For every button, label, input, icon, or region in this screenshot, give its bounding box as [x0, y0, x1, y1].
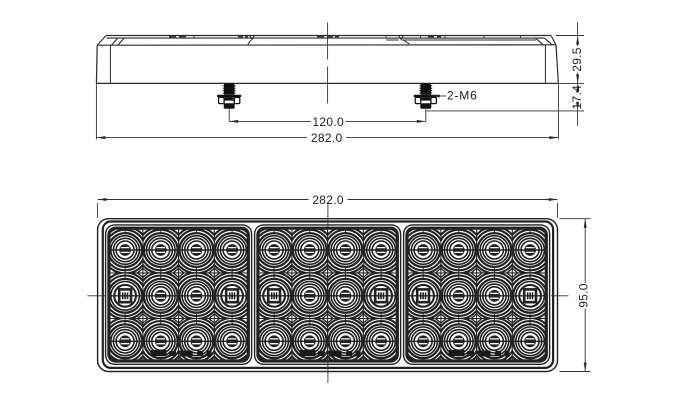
- svg-text:29.5: 29.5: [570, 47, 584, 72]
- svg-text:95.0: 95.0: [577, 283, 591, 308]
- svg-text:282.0: 282.0: [311, 131, 343, 145]
- svg-text:120.0: 120.0: [312, 115, 344, 129]
- svg-text:17.4: 17.4: [570, 85, 584, 110]
- svg-text:2-M6: 2-M6: [447, 89, 478, 103]
